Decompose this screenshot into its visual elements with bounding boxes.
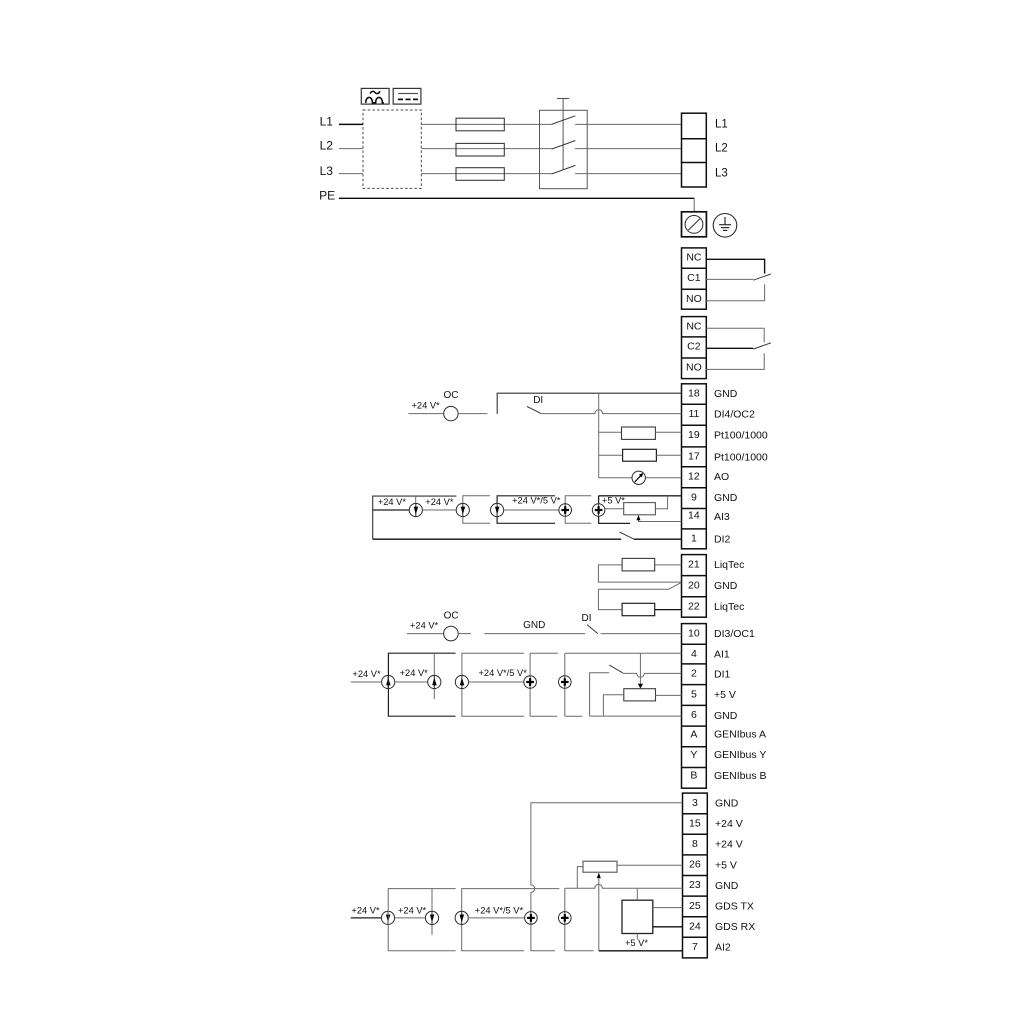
svg-text:GENIbus Y: GENIbus Y [714, 749, 766, 761]
svg-text:GND: GND [714, 710, 738, 722]
svg-text:+24 V*: +24 V* [351, 906, 380, 916]
svg-text:5: 5 [691, 688, 697, 700]
svg-text:26: 26 [689, 859, 701, 871]
svg-text:22: 22 [688, 600, 700, 612]
svg-text:OC: OC [444, 610, 459, 621]
svg-text:DI3/OC1: DI3/OC1 [714, 628, 755, 640]
svg-text:GND: GND [523, 620, 545, 631]
svg-text:14: 14 [688, 510, 700, 522]
svg-text:+24 V*/5 V*: +24 V*/5 V* [475, 906, 524, 916]
svg-text:+24 V*: +24 V* [398, 906, 427, 916]
svg-text:6: 6 [691, 709, 697, 721]
svg-text:19: 19 [688, 429, 700, 441]
svg-text:NC: NC [686, 320, 702, 332]
svg-text:+24 V: +24 V [715, 818, 743, 830]
svg-text:25: 25 [689, 900, 701, 912]
svg-text:PE: PE [319, 188, 335, 202]
svg-text:L1: L1 [320, 115, 334, 129]
svg-text:C2: C2 [687, 341, 701, 353]
svg-text:+24 V*: +24 V* [410, 621, 439, 631]
svg-text:20: 20 [688, 579, 700, 591]
svg-text:L1: L1 [715, 119, 728, 131]
svg-text:GND: GND [714, 492, 738, 504]
svg-text:+24 V*/5 V*: +24 V*/5 V* [512, 496, 561, 506]
svg-text:L2: L2 [320, 139, 334, 153]
svg-text:C1: C1 [687, 272, 701, 284]
svg-text:GENIbus A: GENIbus A [714, 728, 766, 740]
svg-text:GENIbus B: GENIbus B [714, 770, 767, 782]
svg-text:12: 12 [688, 470, 700, 482]
svg-text:9: 9 [691, 491, 697, 503]
svg-text:24: 24 [689, 920, 701, 932]
svg-text:B: B [690, 770, 697, 782]
svg-text:OC: OC [444, 390, 459, 401]
svg-text:NO: NO [686, 362, 702, 374]
svg-text:15: 15 [689, 817, 701, 829]
svg-text:10: 10 [688, 627, 700, 639]
svg-text:L2: L2 [715, 143, 728, 155]
svg-text:+5 V: +5 V [715, 859, 737, 871]
svg-text:DI: DI [533, 395, 543, 406]
svg-text:Pt100/1000: Pt100/1000 [714, 430, 768, 442]
svg-text:8: 8 [692, 838, 698, 850]
svg-text:LiqTec: LiqTec [714, 559, 744, 571]
svg-text:GND: GND [715, 880, 739, 892]
svg-text:+24 V: +24 V [715, 839, 743, 851]
svg-text:DI2: DI2 [714, 533, 731, 545]
svg-text:GND: GND [715, 798, 739, 810]
svg-text:AI3: AI3 [714, 511, 730, 523]
svg-text:A: A [690, 728, 697, 740]
svg-text:18: 18 [688, 388, 700, 400]
svg-text:+24 V*/5 V*: +24 V*/5 V* [479, 668, 528, 678]
svg-text:+5 V*: +5 V* [602, 496, 625, 506]
svg-text:L3: L3 [320, 164, 334, 178]
svg-text:GND: GND [714, 388, 738, 400]
svg-text:AO: AO [714, 471, 729, 483]
svg-text:3: 3 [692, 797, 698, 809]
svg-text:AI2: AI2 [715, 942, 731, 954]
svg-text:+24 V*: +24 V* [352, 669, 381, 679]
svg-text:4: 4 [691, 648, 697, 660]
svg-text:+24 V*: +24 V* [400, 668, 429, 678]
svg-text:DI: DI [582, 613, 592, 624]
svg-text:Pt100/1000: Pt100/1000 [714, 451, 768, 463]
svg-text:NO: NO [686, 293, 702, 305]
svg-text:21: 21 [688, 558, 700, 570]
svg-text:1: 1 [691, 533, 697, 545]
svg-text:2: 2 [691, 668, 697, 680]
svg-text:17: 17 [688, 451, 700, 463]
svg-text:7: 7 [692, 941, 698, 953]
svg-text:GDS RX: GDS RX [715, 921, 755, 933]
svg-text:GDS TX: GDS TX [715, 901, 754, 913]
svg-text:+5 V*: +5 V* [625, 938, 648, 948]
svg-text:GND: GND [714, 580, 738, 592]
svg-text:AI1: AI1 [714, 649, 730, 661]
svg-text:L3: L3 [715, 168, 728, 180]
svg-text:+24 V*: +24 V* [378, 497, 407, 507]
svg-text:+24 V*: +24 V* [412, 401, 441, 411]
svg-text:+5 V: +5 V [714, 689, 736, 701]
svg-text:NC: NC [686, 252, 702, 264]
svg-text:LiqTec: LiqTec [714, 601, 744, 613]
svg-text:11: 11 [688, 408, 699, 420]
svg-text:DI1: DI1 [714, 668, 731, 680]
svg-text:+24 V*: +24 V* [425, 497, 454, 507]
svg-text:DI4/OC2: DI4/OC2 [714, 409, 755, 421]
svg-text:Y: Y [690, 749, 697, 761]
svg-text:23: 23 [689, 879, 701, 891]
